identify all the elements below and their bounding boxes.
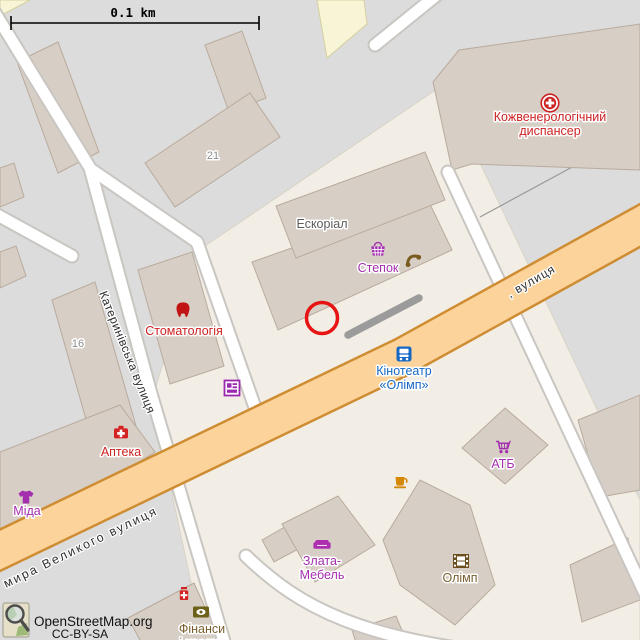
film-icon [453,554,469,568]
poi-label[interactable]: «Олімп» [380,378,429,392]
poi-label[interactable]: Мебель [300,568,345,582]
attribution-license: CC-BY-SA [52,627,108,640]
poi-label[interactable]: диспансер [519,124,580,138]
map-viewport[interactable]: Катеринівська вулиця мира Великого вулиц… [0,0,640,640]
money-icon [193,607,209,618]
couch-icon [313,540,330,549]
poi-label[interactable]: АТБ [491,457,514,471]
poi-label[interactable]: Аптека [101,445,141,459]
poi-label[interactable]: Злата- [303,554,341,568]
poi-label[interactable]: Степок [358,261,399,275]
kiosk-icon[interactable] [225,381,240,396]
bus-stop-icon [397,347,412,362]
map-canvas[interactable]: Катеринівська вулиця мира Великого вулиц… [0,0,640,640]
housenumber-21: 21 [207,150,219,162]
housenumber-16: 16 [72,338,84,350]
poi-label[interactable]: Олімп [442,571,477,585]
medicine-bottle-icon [180,587,188,600]
scale-label: 0.1 km [110,5,156,20]
poi-label[interactable]: Стоматологія [145,324,223,338]
poi-label[interactable]: Фінанси [179,622,225,636]
poi-label[interactable]: і кредит [179,636,225,640]
poi-label[interactable]: Міда [13,504,40,518]
poi-label-eskorial[interactable]: Ескоріал [297,217,348,231]
poi-label[interactable]: Кінотеатр [376,364,432,378]
osm-logo-icon [3,603,29,637]
poi-label[interactable]: Кожвенерологічний [494,110,607,124]
